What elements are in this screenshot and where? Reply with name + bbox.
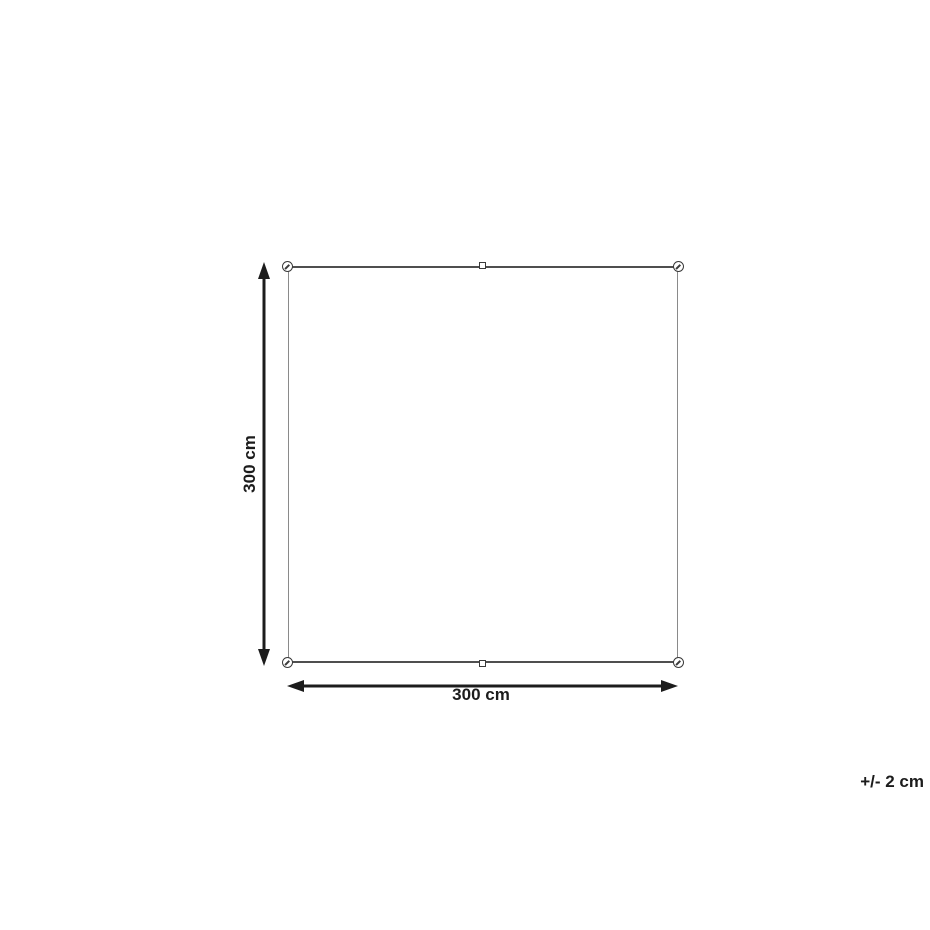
hanging-tab-icon <box>479 660 486 667</box>
width-dimension-label: 300 cm <box>452 685 510 705</box>
product-dimension-diagram: 300 cm 300 cm +/- 2 cm <box>0 0 930 930</box>
grommet-icon <box>282 261 293 272</box>
height-dimension-label: 300 cm <box>240 435 260 493</box>
hanging-tab-icon <box>479 262 486 269</box>
tolerance-label: +/- 2 cm <box>860 772 924 792</box>
grommet-icon <box>673 657 684 668</box>
grommet-icon <box>673 261 684 272</box>
product-outline <box>288 266 678 663</box>
grommet-icon <box>282 657 293 668</box>
